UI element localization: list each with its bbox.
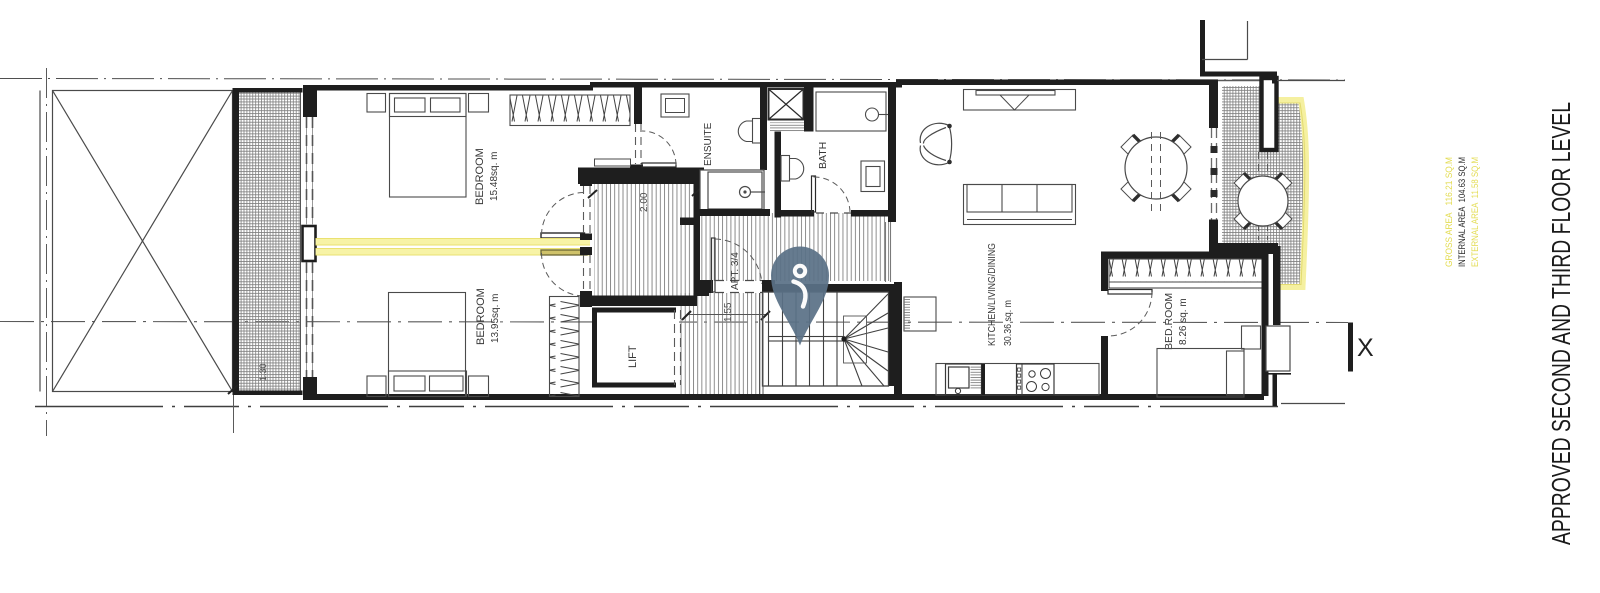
svg-text:KITCHEN/LIVING/DINING: KITCHEN/LIVING/DINING — [986, 243, 998, 346]
svg-text:EXTERNAL AREA 11.58 SQ.M: EXTERNAL AREA 11.58 SQ.M — [1470, 157, 1481, 267]
svg-text:LIFT: LIFT — [627, 345, 639, 368]
svg-text:GROSS AREA 116.21 SQ.M: GROSS AREA 116.21 SQ.M — [1444, 157, 1455, 267]
svg-text:BEDROOM: BEDROOM — [474, 148, 486, 205]
svg-text:BATH: BATH — [817, 142, 829, 169]
svg-text:15.48sq. m: 15.48sq. m — [489, 152, 500, 201]
svg-text:1.30: 1.30 — [258, 363, 268, 381]
svg-text:APPROVED SECOND AND THIRD FLOO: APPROVED SECOND AND THIRD FLOOR LEVEL — [1546, 102, 1576, 545]
svg-text:BED.ROOM: BED.ROOM — [1163, 293, 1175, 350]
svg-text:X: X — [1357, 334, 1374, 362]
svg-text:1.55: 1.55 — [723, 302, 734, 322]
svg-text:13.95sq. m: 13.95sq. m — [490, 294, 501, 343]
svg-text:30.36 sq. m: 30.36 sq. m — [1003, 300, 1014, 346]
svg-text:ENSUITE: ENSUITE — [703, 122, 714, 166]
svg-text:BEDROOM: BEDROOM — [475, 288, 487, 345]
svg-text:INTERNAL AREA 104.63 SQ.M: INTERNAL AREA 104.63 SQ.M — [1457, 157, 1468, 267]
svg-text:APT. 3/4: APT. 3/4 — [730, 252, 741, 290]
svg-text:2.00: 2.00 — [639, 192, 650, 212]
svg-text:8.26 sq. m: 8.26 sq. m — [1178, 298, 1189, 345]
